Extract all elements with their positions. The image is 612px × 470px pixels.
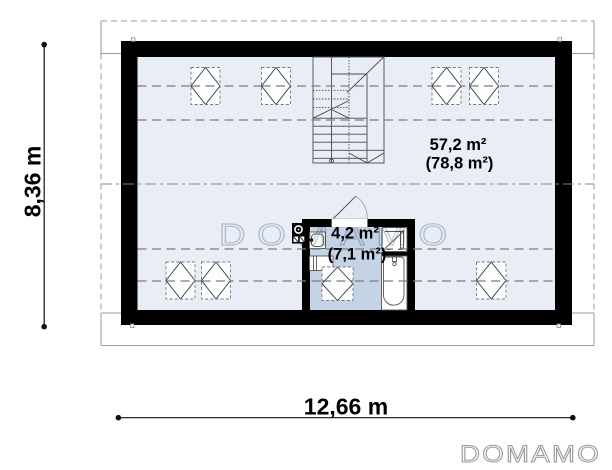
- svg-text:4,2 m²: 4,2 m²: [331, 225, 379, 243]
- svg-text:DOMAMO: DOMAMO: [460, 441, 601, 468]
- svg-text:(78,8 m²): (78,8 m²): [426, 155, 494, 173]
- svg-text:8,36 m: 8,36 m: [20, 146, 46, 218]
- svg-text:57,2 m²: 57,2 m²: [430, 136, 487, 154]
- svg-text:12,66 m: 12,66 m: [304, 394, 388, 420]
- svg-text:(7,1 m²): (7,1 m²): [328, 246, 387, 264]
